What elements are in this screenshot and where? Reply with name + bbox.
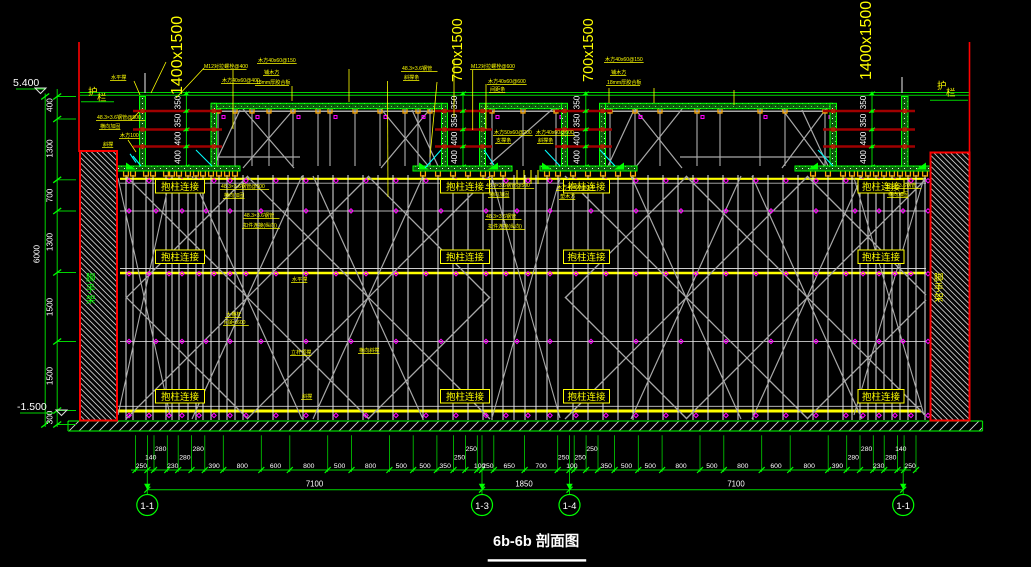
svg-text:1300: 1300 — [46, 232, 55, 251]
svg-text:48.3×3.6钢管@500: 48.3×3.6钢管@500 — [221, 183, 265, 190]
svg-text:架: 架 — [934, 293, 944, 304]
svg-text:抱柱连接: 抱柱连接 — [567, 251, 606, 263]
svg-text:230: 230 — [873, 463, 885, 470]
svg-text:抱柱连接: 抱柱连接 — [161, 251, 200, 263]
svg-text:木方50x60@200: 木方50x60@200 — [494, 129, 532, 136]
svg-text:350: 350 — [450, 113, 459, 127]
svg-text:6000: 6000 — [33, 244, 42, 263]
svg-text:横向加固: 横向加固 — [224, 192, 244, 199]
svg-text:抱柱连接: 抱柱连接 — [862, 391, 901, 403]
svg-text:抱柱连接: 抱柱连接 — [161, 181, 200, 193]
svg-text:木方40x60@150: 木方40x60@150 — [605, 56, 643, 63]
svg-text:抱柱连接: 抱柱连接 — [567, 391, 606, 403]
svg-text:800: 800 — [365, 463, 377, 470]
svg-text:7100: 7100 — [306, 480, 324, 489]
svg-text:350: 350 — [174, 113, 183, 127]
svg-text:-1.500: -1.500 — [17, 401, 47, 413]
svg-text:6b-6b 剖面图: 6b-6b 剖面图 — [493, 532, 579, 550]
svg-text:木方40x60@600: 木方40x60@600 — [488, 78, 526, 85]
svg-text:1850: 1850 — [515, 480, 533, 489]
svg-text:600: 600 — [270, 463, 282, 470]
svg-text:1500: 1500 — [46, 297, 55, 316]
svg-text:1300: 1300 — [46, 139, 55, 158]
svg-text:斜撑: 斜撑 — [302, 393, 312, 400]
svg-text:350: 350 — [601, 463, 613, 470]
svg-text:350: 350 — [573, 113, 582, 127]
svg-text:木方40x60@800: 木方40x60@800 — [557, 184, 595, 191]
svg-text:500: 500 — [621, 463, 633, 470]
svg-text:800: 800 — [675, 463, 687, 470]
svg-text:48.3×3.6钢管@500: 48.3×3.6钢管@500 — [486, 182, 530, 189]
svg-text:280: 280 — [179, 455, 191, 462]
svg-text:脚: 脚 — [86, 273, 96, 284]
svg-text:700x1500: 700x1500 — [450, 18, 466, 82]
svg-text:700x1500: 700x1500 — [581, 18, 597, 82]
svg-text:7100: 7100 — [727, 480, 745, 489]
svg-text:横向加固: 横向加固 — [888, 191, 908, 198]
svg-text:390: 390 — [208, 463, 220, 470]
svg-text:250: 250 — [466, 446, 478, 453]
svg-text:1500: 1500 — [46, 366, 55, 385]
svg-text:木方40x60@600: 木方40x60@600 — [536, 129, 574, 136]
svg-text:18mm厚胶合板: 18mm厚胶合板 — [256, 79, 291, 86]
svg-text:100: 100 — [566, 463, 578, 470]
svg-text:M12对拉螺栓@600: M12对拉螺栓@600 — [471, 63, 515, 70]
svg-text:250: 250 — [482, 463, 494, 470]
svg-text:抱柱连接: 抱柱连接 — [446, 251, 485, 263]
svg-text:1-1: 1-1 — [140, 501, 154, 512]
svg-text:1-3: 1-3 — [475, 501, 489, 512]
svg-text:横向加固: 横向加固 — [100, 123, 120, 130]
svg-text:700: 700 — [535, 463, 547, 470]
svg-text:扣件连接(纵向): 扣件连接(纵向) — [488, 223, 522, 230]
svg-text:800: 800 — [804, 463, 816, 470]
svg-text:垫木方: 垫木方 — [560, 193, 575, 200]
svg-text:木方40x60@400: 木方40x60@400 — [222, 77, 260, 84]
svg-text:800: 800 — [303, 463, 315, 470]
svg-text:木方40x60@150: 木方40x60@150 — [258, 57, 296, 64]
svg-text:抱柱连接: 抱柱连接 — [862, 251, 901, 263]
svg-text:48.3×3.6钢管@500: 48.3×3.6钢管@500 — [97, 114, 141, 121]
svg-text:500: 500 — [396, 463, 408, 470]
svg-text:800: 800 — [237, 463, 249, 470]
svg-text:铺木方: 铺木方 — [264, 69, 279, 76]
svg-text:48.3×3.6钢管: 48.3×3.6钢管 — [402, 65, 432, 72]
svg-text:350: 350 — [450, 95, 459, 109]
svg-text:斜撑条: 斜撑条 — [538, 137, 553, 144]
svg-text:横向加固: 横向加固 — [489, 191, 509, 198]
svg-text:800: 800 — [737, 463, 749, 470]
svg-text:390: 390 — [832, 463, 844, 470]
svg-text:350: 350 — [859, 95, 868, 109]
svg-text:350: 350 — [859, 113, 868, 127]
svg-text:扣件连接(纵向): 扣件连接(纵向) — [243, 222, 277, 229]
svg-text:400: 400 — [573, 150, 582, 164]
svg-text:400: 400 — [573, 131, 582, 145]
svg-text:18mm厚胶合板: 18mm厚胶合板 — [607, 79, 642, 86]
svg-text:500: 500 — [334, 463, 346, 470]
svg-text:M12对拉螺栓@400: M12对拉螺栓@400 — [204, 63, 248, 70]
svg-text:250: 250 — [575, 455, 587, 462]
svg-text:木方100: 木方100 — [120, 132, 139, 139]
svg-text:350: 350 — [573, 95, 582, 109]
svg-text:48.3×3.6钢管: 48.3×3.6钢管 — [886, 182, 916, 189]
svg-text:230: 230 — [167, 463, 179, 470]
svg-text:250: 250 — [558, 455, 570, 462]
svg-text:140: 140 — [145, 455, 157, 462]
svg-text:支撑条: 支撑条 — [496, 137, 511, 144]
svg-text:350: 350 — [440, 463, 452, 470]
svg-text:500: 500 — [419, 463, 431, 470]
svg-text:300: 300 — [46, 410, 55, 424]
svg-text:抱柱连接: 抱柱连接 — [161, 391, 200, 403]
svg-text:400: 400 — [174, 150, 183, 164]
svg-text:手: 手 — [86, 283, 96, 295]
svg-text:抱柱连接: 抱柱连接 — [446, 181, 485, 193]
svg-text:650: 650 — [504, 463, 516, 470]
svg-text:500: 500 — [645, 463, 657, 470]
svg-text:1400x1500: 1400x1500 — [858, 1, 875, 80]
svg-text:5.400: 5.400 — [13, 77, 39, 89]
svg-text:600: 600 — [770, 463, 782, 470]
svg-text:400: 400 — [450, 150, 459, 164]
svg-text:架: 架 — [86, 295, 96, 306]
svg-text:间距≤600: 间距≤600 — [224, 319, 246, 326]
svg-text:280: 280 — [848, 455, 860, 462]
svg-text:48.3×3.6钢管: 48.3×3.6钢管 — [244, 212, 274, 219]
svg-text:1-1: 1-1 — [896, 501, 910, 512]
svg-text:140: 140 — [895, 446, 907, 453]
svg-text:250: 250 — [586, 446, 598, 453]
svg-text:间距条: 间距条 — [490, 86, 505, 93]
svg-text:280: 280 — [155, 446, 167, 453]
svg-text:抱柱连接: 抱柱连接 — [446, 391, 485, 403]
svg-text:横向斜撑: 横向斜撑 — [359, 347, 379, 354]
svg-text:1-4: 1-4 — [563, 501, 577, 512]
svg-text:栏: 栏 — [946, 87, 956, 99]
svg-text:水平撑: 水平撑 — [111, 74, 126, 81]
svg-text:400: 400 — [859, 150, 868, 164]
svg-text:水平撑: 水平撑 — [292, 276, 307, 283]
svg-text:1400x1500: 1400x1500 — [169, 16, 186, 95]
svg-text:280: 280 — [861, 446, 873, 453]
svg-text:400: 400 — [450, 131, 459, 145]
svg-text:250: 250 — [904, 463, 916, 470]
svg-text:斜撑: 斜撑 — [103, 141, 113, 148]
svg-text:250: 250 — [136, 463, 148, 470]
svg-text:500: 500 — [706, 463, 718, 470]
svg-text:400: 400 — [174, 131, 183, 145]
svg-text:400: 400 — [859, 131, 868, 145]
svg-text:250: 250 — [454, 455, 466, 462]
svg-text:铺木方: 铺木方 — [611, 69, 626, 76]
svg-text:280: 280 — [193, 446, 205, 453]
svg-text:280: 280 — [885, 455, 897, 462]
svg-text:700: 700 — [46, 188, 55, 202]
svg-text:斜撑条: 斜撑条 — [404, 74, 419, 81]
svg-text:大横杆: 大横杆 — [226, 311, 241, 318]
svg-text:立杆顶撑: 立杆顶撑 — [291, 349, 311, 356]
svg-text:48.3×3.6钢管: 48.3×3.6钢管 — [486, 213, 516, 220]
svg-text:350: 350 — [174, 95, 183, 109]
svg-text:400: 400 — [46, 98, 55, 112]
